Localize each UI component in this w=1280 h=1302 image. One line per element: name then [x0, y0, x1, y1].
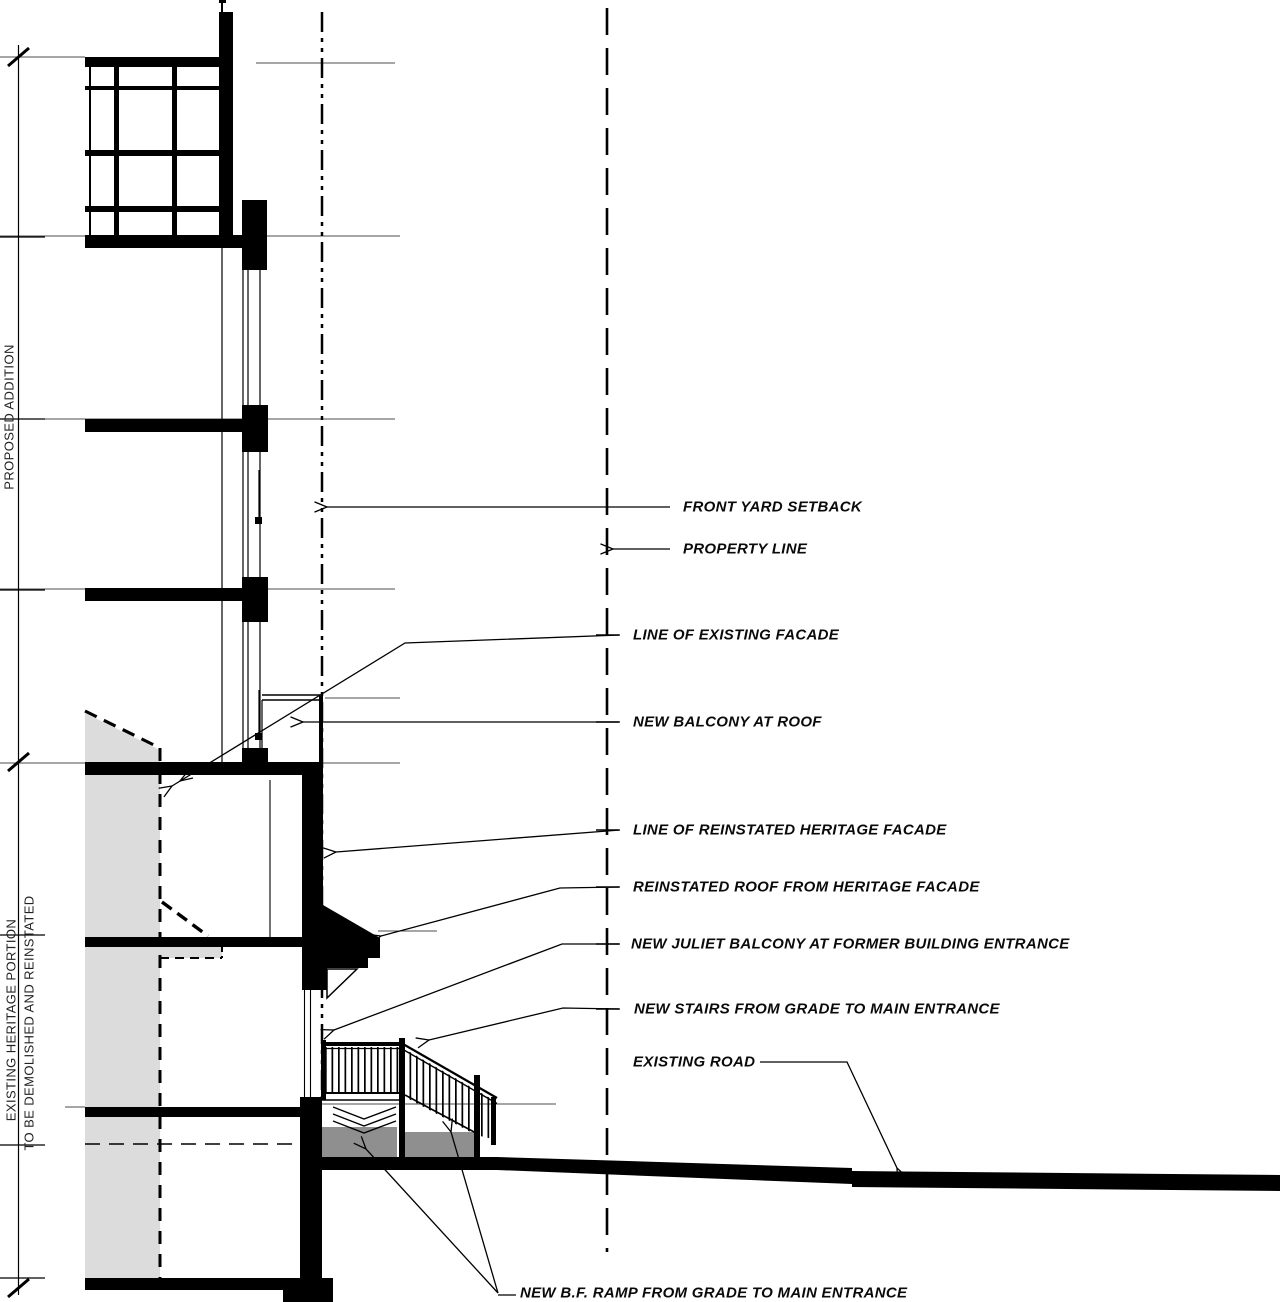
leader-reinstated-roof [381, 887, 620, 936]
leader-existing-road [760, 1062, 897, 1168]
cornice-bracket [327, 969, 357, 998]
side-label-proposed-addition: PROPOSED ADDITION [2, 344, 17, 490]
label-line-of-existing-facade: LINE OF EXISTING FACADE [633, 627, 839, 644]
basement-floor-slab [85, 1278, 333, 1290]
heritage-floor-slab [85, 937, 305, 947]
label-reinstated-heritage-facade: LINE OF REINSTATED HERITAGE FACADE [633, 822, 947, 839]
newel-post [474, 1075, 480, 1160]
entry-ground-slab [300, 1157, 497, 1170]
facade-block-lower [242, 577, 268, 622]
level-reference-lines [0, 57, 556, 1107]
existing-road-surface [497, 1157, 1280, 1191]
label-juliet-balcony: NEW JULIET BALCONY AT FORMER BUILDING EN… [631, 936, 1070, 953]
label-bf-ramp: NEW B.F. RAMP FROM GRADE TO MAIN ENTRANC… [520, 1285, 907, 1302]
label-property-line: PROPERTY LINE [683, 541, 807, 558]
heritage-demolition-shading [85, 713, 222, 1278]
roof-slab [85, 57, 233, 67]
floor-slab-mid [85, 419, 242, 432]
leader-new-stairs [429, 1008, 620, 1040]
curtain-wall [222, 248, 260, 762]
basement-ceiling-slab [85, 1107, 300, 1117]
label-new-stairs: NEW STAIRS FROM GRADE TO MAIN ENTRANCE [634, 1001, 1000, 1018]
building-section-addition [85, 0, 323, 775]
heritage-roof-slab [85, 762, 323, 775]
facade-beam [242, 200, 267, 270]
roof-balcony [262, 695, 323, 762]
side-label-existing-heritage-2: TO BE DEMOLISHED AND REINSTATED [22, 895, 37, 1150]
parapet-column [219, 12, 233, 248]
penthouse-window-grid [85, 67, 219, 235]
newel-post [399, 1038, 405, 1160]
parapet-stem [221, 0, 223, 14]
section-linework [0, 0, 1280, 1302]
side-label-existing-heritage-1: EXISTING HERITAGE PORTION [4, 919, 19, 1121]
floor-slab-lower [85, 588, 242, 601]
floor-slab-upper [85, 235, 245, 248]
label-new-balcony-at-roof: NEW BALCONY AT ROOF [633, 714, 822, 731]
label-existing-road: EXISTING ROAD [633, 1054, 755, 1071]
architectural-section-drawing: FRONT YARD SETBACK PROPERTY LINE LINE OF… [0, 0, 1280, 1302]
facade-block-mid [242, 405, 268, 452]
entry-stairs-and-railing [321, 1038, 497, 1160]
facade-sill [242, 748, 268, 763]
landing-handrail [322, 1042, 404, 1046]
label-reinstated-roof: REINSTATED ROOF FROM HERITAGE FACADE [633, 879, 980, 896]
bf-ramp-right [405, 1132, 475, 1157]
foundation-wall [300, 1097, 322, 1278]
newel-post [491, 1097, 496, 1145]
leader-bf-ramp-left [366, 1149, 498, 1293]
label-front-yard-setback: FRONT YARD SETBACK [683, 499, 862, 516]
leader-reinstated-heritage-facade [336, 830, 620, 852]
